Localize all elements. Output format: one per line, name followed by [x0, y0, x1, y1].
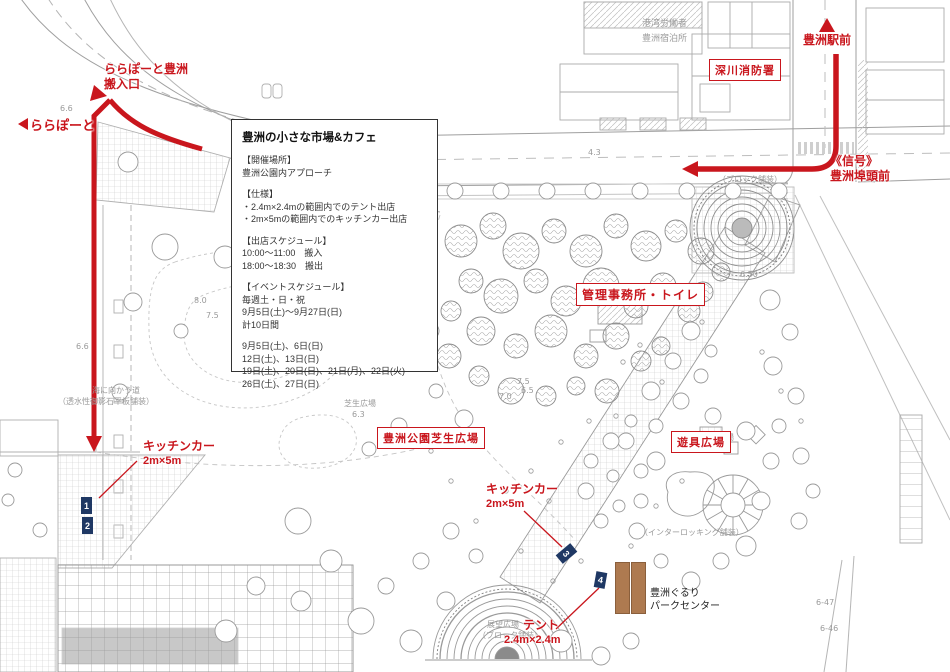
- label-lalaport-direction: ららぽーと: [18, 115, 95, 134]
- route-layer: [86, 18, 836, 629]
- label-tent: テント 2.4m×2.4m: [523, 618, 561, 648]
- info-section-place: 【開催場所】 豊洲公園内アプローチ: [242, 154, 427, 179]
- toyosu-park-event-map: { "colors": {"accent_red": "#c9161d", "m…: [0, 0, 950, 672]
- park-center-bar-2: [631, 562, 646, 614]
- stall-marker-2: 2: [82, 517, 93, 534]
- info-section-event-schedule: 【イベントスケジュール】 毎週土・日・祝 9月5日(土)～9月27日(日) 計1…: [242, 281, 427, 331]
- label-station: 豊洲駅前: [803, 31, 851, 48]
- stall-marker-1: 1: [81, 497, 92, 514]
- info-section-dates: 9月5日(土)、6日(日) 12日(土)、13日(日) 19日(土)、20日(日…: [242, 340, 427, 390]
- info-section-spec: 【仕様】 ・2.4m×2.4mの範囲内でのテント出店 ・2m×5mの範囲内でのキ…: [242, 188, 427, 226]
- route-arrowhead-station: [819, 18, 835, 32]
- label-kitchen-car-center: キッチンカー 2m×5m: [486, 482, 558, 512]
- park-center-bar-1: [615, 562, 630, 614]
- info-section-setup-schedule: 【出店スケジュール】 10:00～11:00 搬入 18:00～18:30 搬出: [242, 235, 427, 273]
- route-arrowhead-down: [86, 436, 102, 452]
- label-park-center: 豊洲ぐるり パークセンター: [650, 587, 720, 613]
- label-playground: 遊具広場: [671, 431, 731, 453]
- label-lawn-plaza: 豊洲公園芝生広場: [377, 427, 485, 449]
- route-arrowhead-left: [682, 161, 698, 177]
- label-lalaport-entrance: ららぽーと豊洲 搬入口: [104, 62, 188, 92]
- label-lalaport-line2: 搬入口: [104, 77, 188, 92]
- left-arrowhead-icon: [18, 118, 28, 130]
- site-plan-drawing: [0, 0, 950, 672]
- label-fire-station: 深川消防署: [709, 59, 781, 81]
- label-lalaport-line1: ららぽーと豊洲: [104, 62, 188, 77]
- label-kitchen-car-left: キッチンカー 2m×5m: [143, 439, 215, 469]
- event-info-box: 豊洲の小さな市場&カフェ 【開催場所】 豊洲公園内アプローチ 【仕様】 ・2.4…: [231, 119, 438, 372]
- park-structures-layer: [0, 84, 922, 672]
- event-title: 豊洲の小さな市場&カフェ: [242, 129, 427, 145]
- label-admin-office: 管理事務所・トイレ: [576, 283, 705, 306]
- label-signal: 《信号》 豊洲埠頭前: [830, 154, 890, 184]
